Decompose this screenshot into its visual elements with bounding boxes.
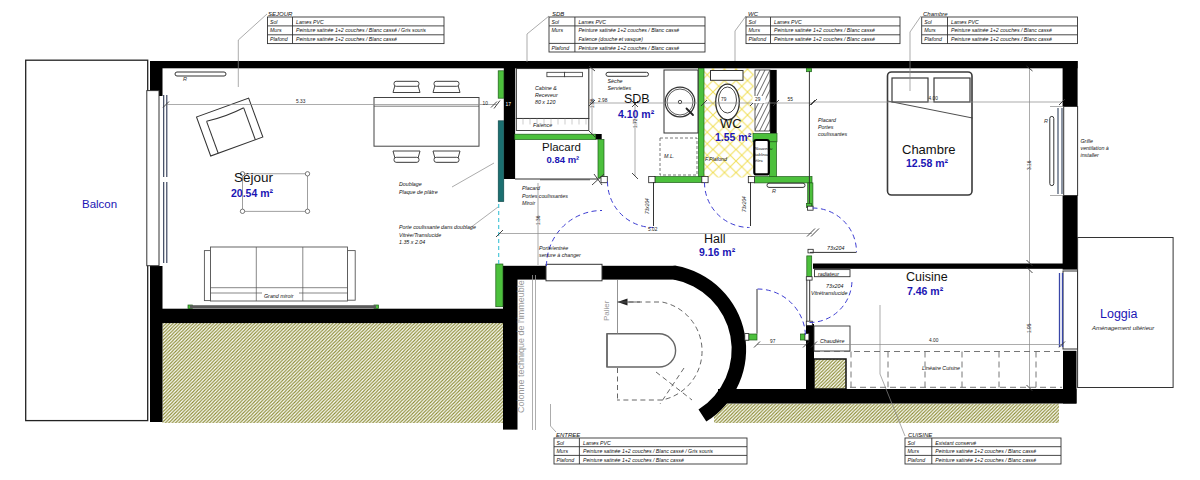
svg-text:Chaudière: Chaudière <box>820 338 844 344</box>
svg-text:7.46 m²: 7.46 m² <box>907 285 944 297</box>
svg-text:Faïence (douche et vasque): Faïence (douche et vasque) <box>578 36 643 42</box>
svg-text:29: 29 <box>755 97 761 102</box>
svg-text:CUISINE: CUISINE <box>908 432 933 438</box>
svg-text:17: 17 <box>506 101 512 107</box>
svg-text:R: R <box>772 188 776 194</box>
svg-text:1.72: 1.72 <box>633 118 638 128</box>
svg-text:SDB: SDB <box>552 11 564 17</box>
svg-text:Portes: Portes <box>818 124 834 130</box>
svg-text:Chambre: Chambre <box>923 11 948 17</box>
svg-text:Chambre: Chambre <box>902 142 955 157</box>
svg-text:Sol: Sol <box>557 440 565 446</box>
svg-text:Grand miroir: Grand miroir <box>264 293 294 299</box>
svg-text:Plafond: Plafond <box>749 36 768 42</box>
svg-text:3.16: 3.16 <box>1027 160 1032 170</box>
svg-text:F.Plafond: F.Plafond <box>705 156 728 162</box>
svg-text:Peinture satinée 1+2 couches: Peinture satinée 1+2 couches / Blanc cas… <box>951 36 1052 42</box>
svg-text:Peinture satinée 1+2 couches: Peinture satinée 1+2 couches / Blanc cas… <box>935 457 1036 463</box>
svg-text:1.55 m²: 1.55 m² <box>715 131 752 143</box>
svg-text:Plafond: Plafond <box>908 457 927 463</box>
svg-text:Vitrétranslucide: Vitrétranslucide <box>811 290 847 296</box>
svg-text:ventilation à: ventilation à <box>1081 145 1109 151</box>
svg-text:73x204: 73x204 <box>742 196 747 212</box>
svg-text:Lames PVC: Lames PVC <box>296 19 324 25</box>
svg-text:WC: WC <box>720 116 742 131</box>
svg-text:Cabine &: Cabine & <box>535 85 557 91</box>
svg-text:Murs: Murs <box>908 448 920 454</box>
svg-text:Plafond: Plafond <box>924 36 943 42</box>
svg-text:1.35 x 2.04: 1.35 x 2.04 <box>399 239 425 245</box>
svg-text:Peinture satinée 1+2 couches: Peinture satinée 1+2 couches / Blanc cas… <box>578 45 679 51</box>
svg-text:Murs: Murs <box>924 27 936 33</box>
svg-text:2.98: 2.98 <box>598 98 608 103</box>
svg-text:Murs: Murs <box>552 27 564 33</box>
svg-text:Vitrée/Translucide: Vitrée/Translucide <box>399 232 441 238</box>
svg-text:élec: élec <box>755 158 764 163</box>
svg-text:Portes coulissantes: Portes coulissantes <box>522 193 568 199</box>
svg-text:Peinture satinée 1+2 couches: Peinture satinée 1+2 couches / Blanc cas… <box>951 27 1052 33</box>
svg-text:Plafond: Plafond <box>270 36 289 42</box>
svg-text:Lames PVC: Lames PVC <box>774 19 802 25</box>
svg-text:Nouveau: Nouveau <box>755 146 773 151</box>
svg-text:Sol: Sol <box>749 19 757 25</box>
svg-text:Faïence: Faïence <box>533 122 552 128</box>
svg-text:Porte/entrée: Porte/entrée <box>539 245 568 251</box>
svg-text:M.L.: M.L. <box>664 153 674 159</box>
svg-text:Plaque de plâtre: Plaque de plâtre <box>399 189 438 195</box>
svg-text:Lames PVC: Lames PVC <box>583 440 611 446</box>
svg-text:Peinture satinée 1+2 couches: Peinture satinée 1+2 couches / Blanc cas… <box>774 27 875 33</box>
svg-text:73x204: 73x204 <box>826 283 843 289</box>
svg-text:4.00: 4.00 <box>929 338 939 343</box>
svg-text:79: 79 <box>721 97 727 102</box>
svg-text:Lames PVC: Lames PVC <box>951 19 979 25</box>
svg-text:Peinture satinée 1+2 couches: Peinture satinée 1+2 couches / Blanc cas… <box>774 36 875 42</box>
svg-text:Grille: Grille <box>1081 138 1093 144</box>
svg-text:Placard: Placard <box>522 185 541 191</box>
svg-text:Sol: Sol <box>270 19 278 25</box>
svg-text:Séjour: Séjour <box>234 170 274 185</box>
svg-text:Serviettes: Serviettes <box>608 85 632 91</box>
svg-text:tableau: tableau <box>755 152 770 157</box>
svg-text:Linéaire Cuisine: Linéaire Cuisine <box>922 365 960 371</box>
svg-text:Receveur: Receveur <box>535 92 558 98</box>
svg-text:Placard: Placard <box>818 117 837 123</box>
svg-text:radiateur: radiateur <box>818 271 839 277</box>
svg-text:5.33: 5.33 <box>296 99 306 104</box>
svg-text:Placard: Placard <box>542 141 581 153</box>
svg-text:Lames PVC: Lames PVC <box>578 19 606 25</box>
svg-text:5.02: 5.02 <box>648 227 658 232</box>
svg-text:WC: WC <box>748 11 759 17</box>
svg-text:Sèche: Sèche <box>608 78 623 84</box>
svg-text:73x204: 73x204 <box>645 198 650 214</box>
svg-text:4.00: 4.00 <box>929 96 939 101</box>
svg-text:installer: installer <box>1081 152 1099 158</box>
svg-text:97: 97 <box>770 339 776 344</box>
svg-text:Sol: Sol <box>908 440 916 446</box>
svg-text:Colonne technique de l'immeubl: Colonne technique de l'immeuble <box>516 280 526 413</box>
svg-text:Peinture satinée 1+2 couches: Peinture satinée 1+2 couches / Blanc cas… <box>583 457 684 463</box>
svg-text:20.54 m²: 20.54 m² <box>231 187 274 199</box>
svg-text:1.06: 1.06 <box>590 98 595 108</box>
svg-text:Hall: Hall <box>704 232 726 246</box>
svg-text:Miroir: Miroir <box>522 200 535 206</box>
svg-text:Sol: Sol <box>552 19 560 25</box>
svg-text:Doublage: Doublage <box>399 181 422 187</box>
svg-text:Murs: Murs <box>270 27 282 33</box>
svg-text:Loggia: Loggia <box>1100 307 1138 321</box>
svg-text:9.16 m²: 9.16 m² <box>699 246 736 258</box>
svg-text:Aménagement ultérieur: Aménagement ultérieur <box>1091 325 1155 331</box>
svg-text:55: 55 <box>788 97 794 102</box>
svg-text:Peinture satinée 1+2 couches: Peinture satinée 1+2 couches / Blanc cas… <box>583 448 713 454</box>
svg-text:4.10 m²: 4.10 m² <box>618 108 655 120</box>
svg-text:73x204: 73x204 <box>827 245 844 251</box>
svg-text:0.84 m²: 0.84 m² <box>547 154 580 165</box>
svg-text:Murs: Murs <box>749 27 761 33</box>
svg-text:Balcon: Balcon <box>82 198 117 210</box>
svg-text:R: R <box>1044 118 1048 124</box>
svg-text:Palier: Palier <box>602 300 611 321</box>
svg-text:R: R <box>183 76 187 82</box>
svg-text:Cuisine: Cuisine <box>906 270 948 284</box>
svg-text:Existant conservé: Existant conservé <box>935 440 976 446</box>
svg-text:Peinture satinée 1+2 couches: Peinture satinée 1+2 couches / Blanc cas… <box>296 27 426 33</box>
svg-text:12.58 m²: 12.58 m² <box>906 157 949 169</box>
svg-text:Plafond: Plafond <box>557 457 576 463</box>
svg-text:10: 10 <box>483 101 489 106</box>
svg-text:Peinture satinée 1+2 couches: Peinture satinée 1+2 couches / Blanc cas… <box>296 36 397 42</box>
svg-text:SEJOUR: SEJOUR <box>268 11 293 17</box>
svg-text:Murs: Murs <box>557 448 569 454</box>
svg-text:Plafond: Plafond <box>552 45 571 51</box>
svg-text:80 x 120: 80 x 120 <box>535 99 555 105</box>
svg-text:SDB: SDB <box>624 92 650 106</box>
svg-text:Porte coulissante dans doublag: Porte coulissante dans doublage <box>399 224 476 230</box>
svg-text:1.95: 1.95 <box>1027 323 1032 333</box>
svg-text:Peinture satinée 1+2 couches: Peinture satinée 1+2 couches / Blanc cas… <box>578 27 679 33</box>
svg-text:1.36: 1.36 <box>536 215 541 225</box>
svg-text:Sol: Sol <box>924 19 932 25</box>
svg-text:Peinture satinée 1+2 couches: Peinture satinée 1+2 couches / Blanc cas… <box>935 448 1036 454</box>
svg-text:serrure à changer: serrure à changer <box>539 252 581 258</box>
svg-text:ENTREE: ENTREE <box>556 432 581 438</box>
svg-text:coulissantes: coulissantes <box>818 131 847 137</box>
